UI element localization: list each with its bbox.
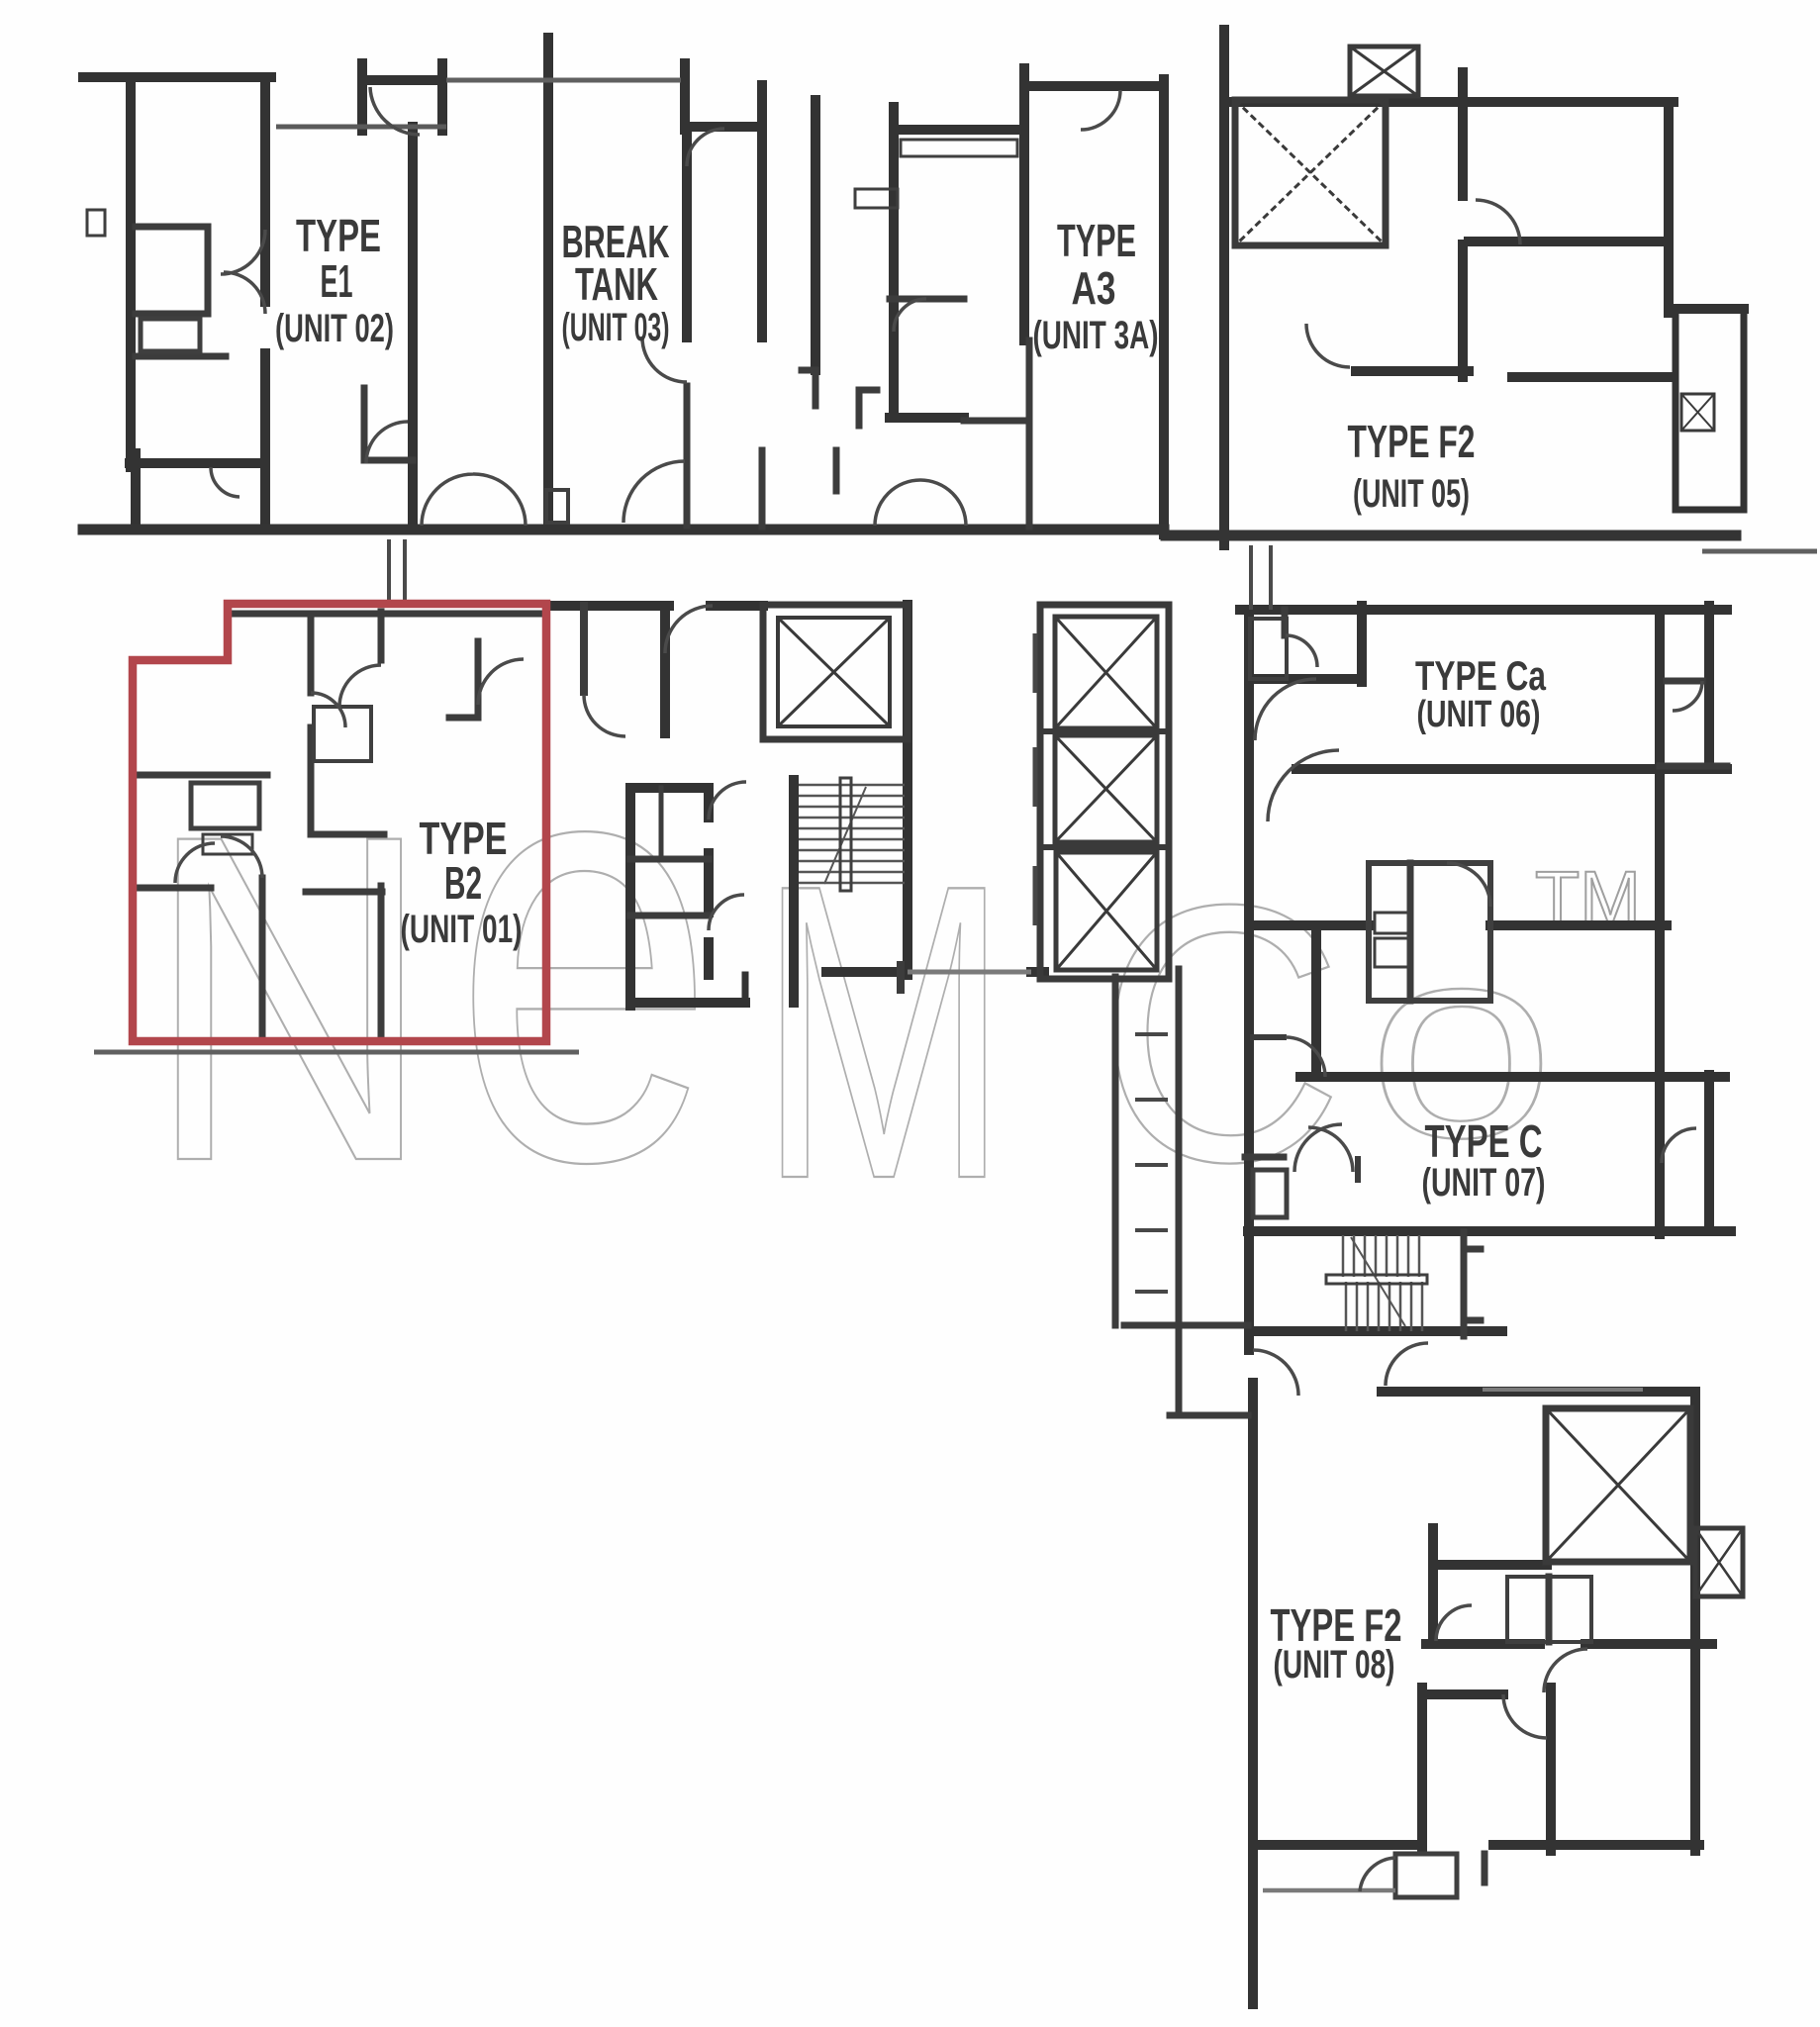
svg-text:(UNIT 05): (UNIT 05) bbox=[1353, 472, 1470, 516]
svg-text:(UNIT 02): (UNIT 02) bbox=[275, 307, 394, 350]
svg-text:(UNIT 01): (UNIT 01) bbox=[401, 908, 523, 951]
svg-text:(UNIT 06): (UNIT 06) bbox=[1417, 694, 1541, 735]
svg-text:TYPE Ca: TYPE Ca bbox=[1415, 652, 1546, 699]
svg-text:C: C bbox=[1098, 829, 1344, 1238]
svg-text:(UNIT 08): (UNIT 08) bbox=[1274, 1643, 1395, 1687]
svg-text:A3: A3 bbox=[1072, 262, 1116, 314]
svg-text:E1: E1 bbox=[321, 255, 353, 307]
svg-text:N: N bbox=[145, 738, 433, 1258]
svg-text:TANK: TANK bbox=[575, 258, 658, 310]
svg-text:TYPE F2: TYPE F2 bbox=[1348, 416, 1476, 467]
svg-text:(UNIT 03): (UNIT 03) bbox=[562, 306, 670, 349]
svg-text:(UNIT 07): (UNIT 07) bbox=[1422, 1161, 1546, 1205]
svg-text:B2: B2 bbox=[444, 857, 482, 909]
svg-text:TYPE: TYPE bbox=[296, 210, 381, 261]
svg-text:TYPE: TYPE bbox=[1057, 215, 1136, 266]
svg-text:(UNIT 3A): (UNIT 3A) bbox=[1033, 314, 1159, 357]
svg-text:TYPE C: TYPE C bbox=[1425, 1115, 1543, 1167]
